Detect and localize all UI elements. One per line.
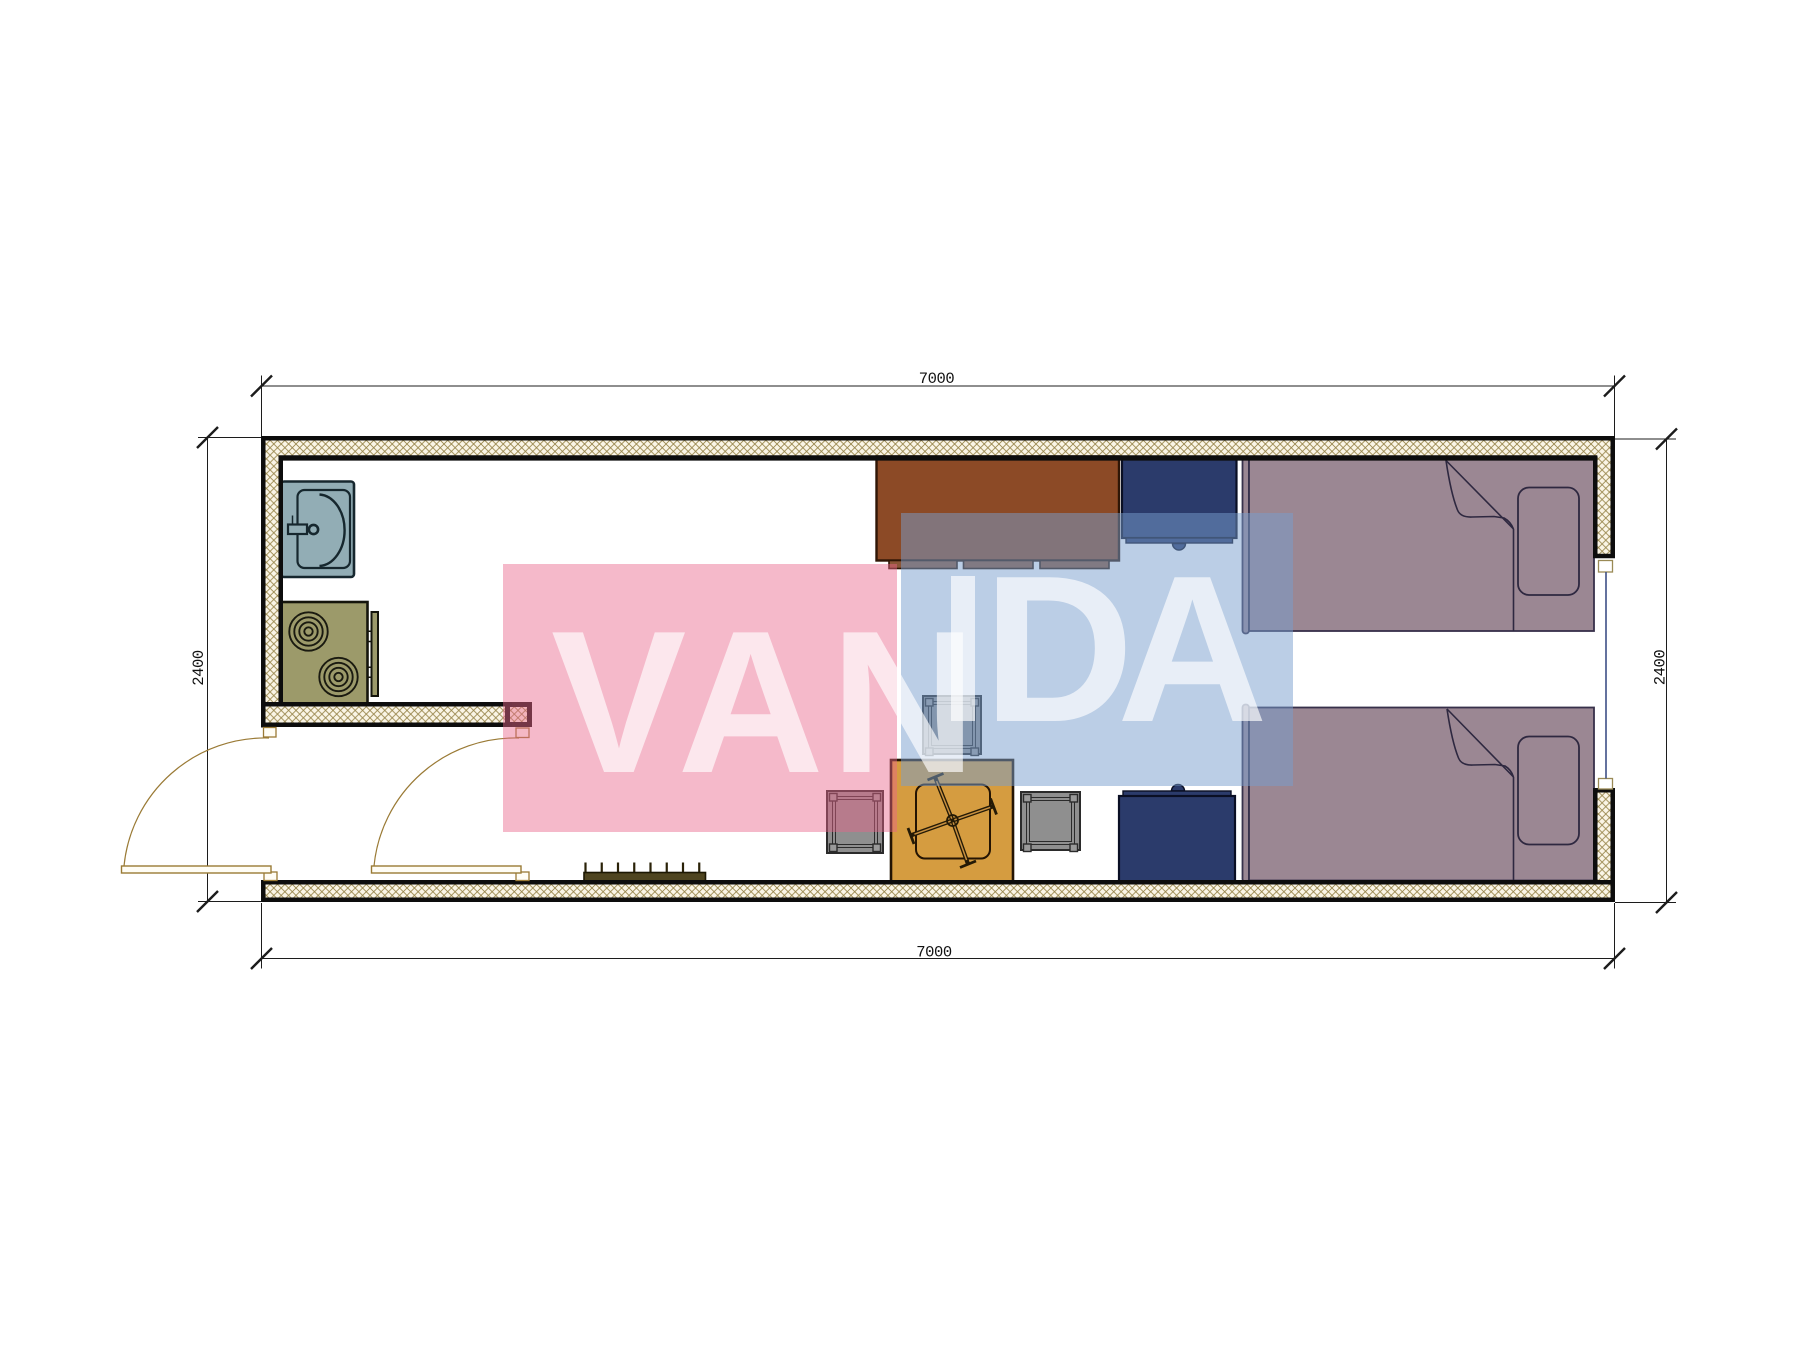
svg-text:2400: 2400 <box>1652 650 1670 686</box>
svg-text:7000: 7000 <box>916 944 952 962</box>
svg-text:VAN: VAN <box>551 589 983 816</box>
svg-text:DA: DA <box>983 533 1263 766</box>
svg-text:2400: 2400 <box>190 650 208 686</box>
svg-text:7000: 7000 <box>919 370 955 388</box>
